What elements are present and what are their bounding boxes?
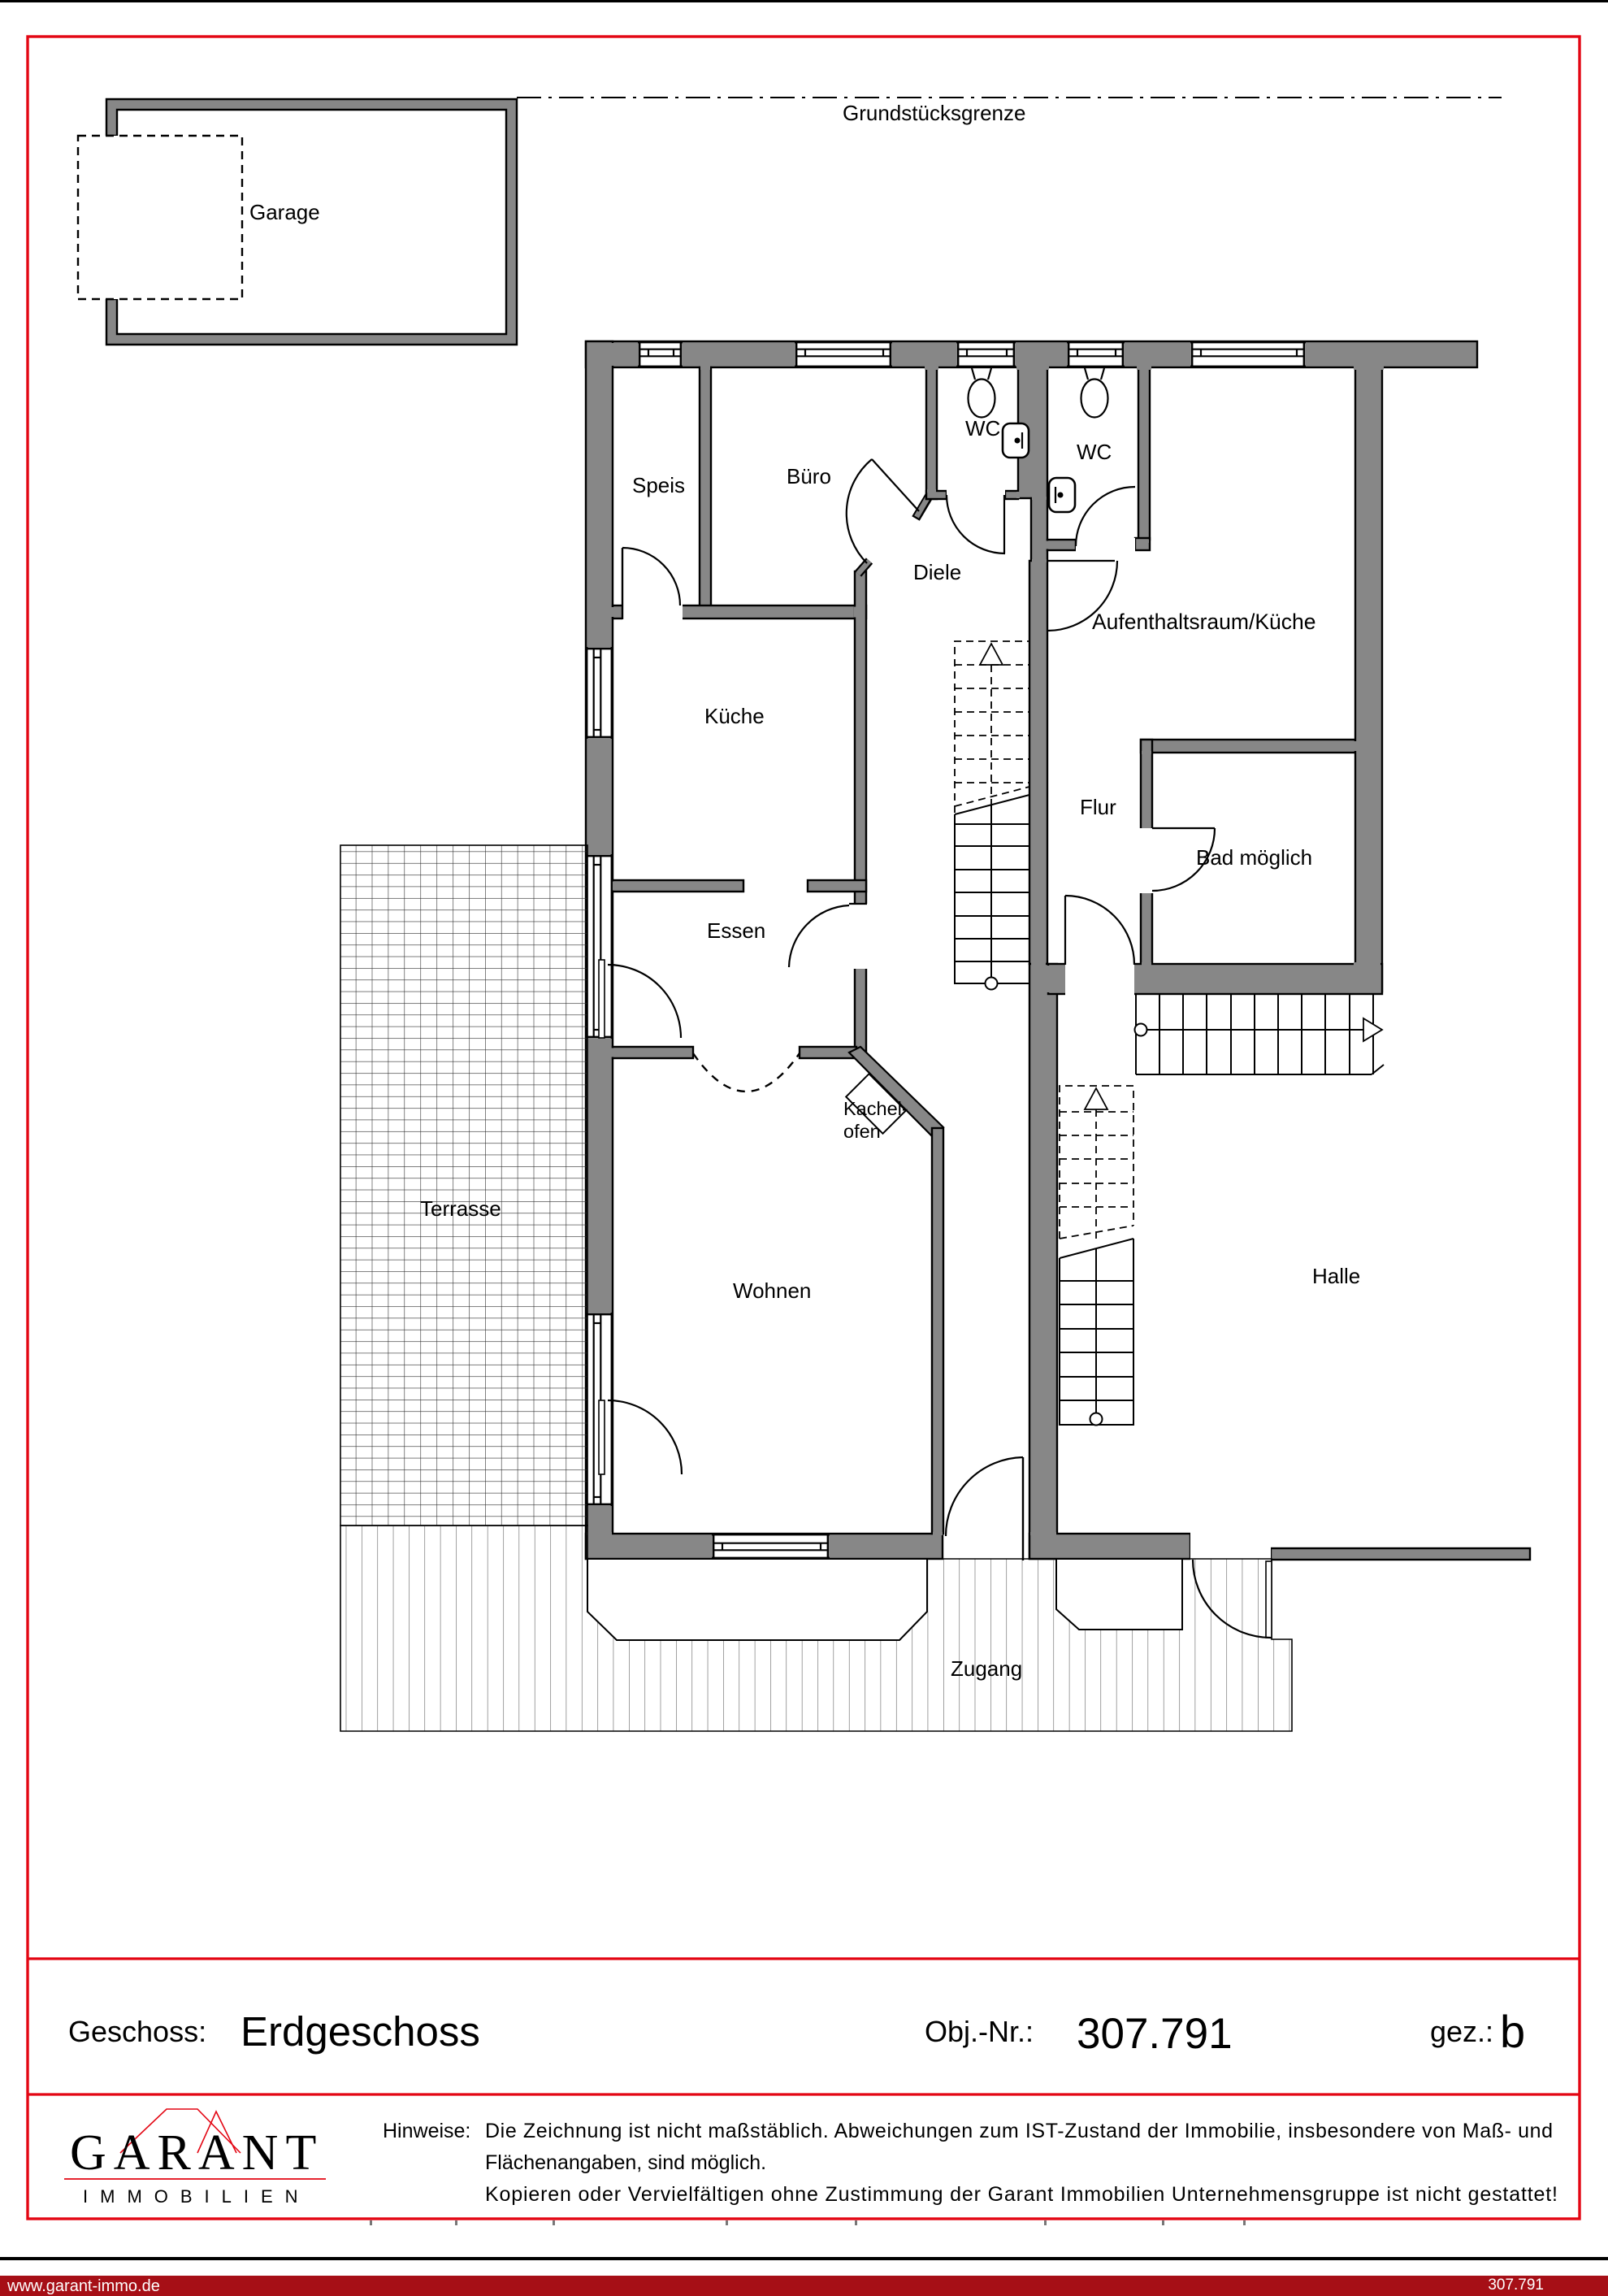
svg-text:Flur: Flur <box>1080 795 1116 819</box>
svg-text:WC: WC <box>1077 440 1112 464</box>
svg-text:gez.:: gez.: <box>1430 2015 1493 2048</box>
svg-text:Küche: Küche <box>704 704 765 728</box>
svg-text:www.garant-immo.de: www.garant-immo.de <box>7 2277 160 2295</box>
svg-text:307.791: 307.791 <box>1488 2276 1544 2294</box>
svg-text:Essen: Essen <box>707 918 765 943</box>
svg-text:307.791: 307.791 <box>1077 2010 1233 2058</box>
svg-text:Aufenthaltsraum/Küche: Aufenthaltsraum/Küche <box>1092 610 1315 634</box>
svg-text:Grundstücksgrenze: Grundstücksgrenze <box>843 101 1025 125</box>
svg-text:IMMOBILIEN: IMMOBILIEN <box>83 2186 310 2207</box>
svg-text:Obj.-Nr.:: Obj.-Nr.: <box>925 2015 1034 2048</box>
svg-text:Garage: Garage <box>249 200 320 224</box>
svg-text:Diele: Diele <box>913 560 961 584</box>
svg-text:Bad möglich: Bad möglich <box>1196 845 1312 870</box>
svg-text:Kopieren oder Vervielfältigen: Kopieren oder Vervielfältigen ohne Zusti… <box>485 2183 1558 2206</box>
svg-text:Terrasse: Terrasse <box>420 1196 501 1221</box>
svg-text:Flächenangaben, sind möglich.: Flächenangaben, sind möglich. <box>485 2151 766 2174</box>
svg-text:Geschoss:: Geschoss: <box>68 2015 206 2048</box>
svg-text:Erdgeschoss: Erdgeschoss <box>241 2008 480 2055</box>
svg-text:Halle: Halle <box>1312 1264 1360 1288</box>
svg-text:Die Zeichnung ist nicht maßstä: Die Zeichnung ist nicht maßstäblich. Abw… <box>485 2120 1553 2142</box>
svg-text:Hinweise:: Hinweise: <box>383 2120 470 2142</box>
svg-text:b: b <box>1500 2006 1525 2057</box>
svg-text:WC: WC <box>965 416 1000 441</box>
svg-text:Speis: Speis <box>632 473 685 497</box>
svg-text:Büro: Büro <box>787 464 831 488</box>
svg-text:ofen: ofen <box>843 1121 881 1142</box>
svg-text:Kachel-: Kachel- <box>843 1098 908 1119</box>
svg-text:Wohnen: Wohnen <box>733 1278 811 1303</box>
svg-text:Zugang: Zugang <box>951 1656 1022 1681</box>
svg-text:GARANT: GARANT <box>70 2125 323 2181</box>
